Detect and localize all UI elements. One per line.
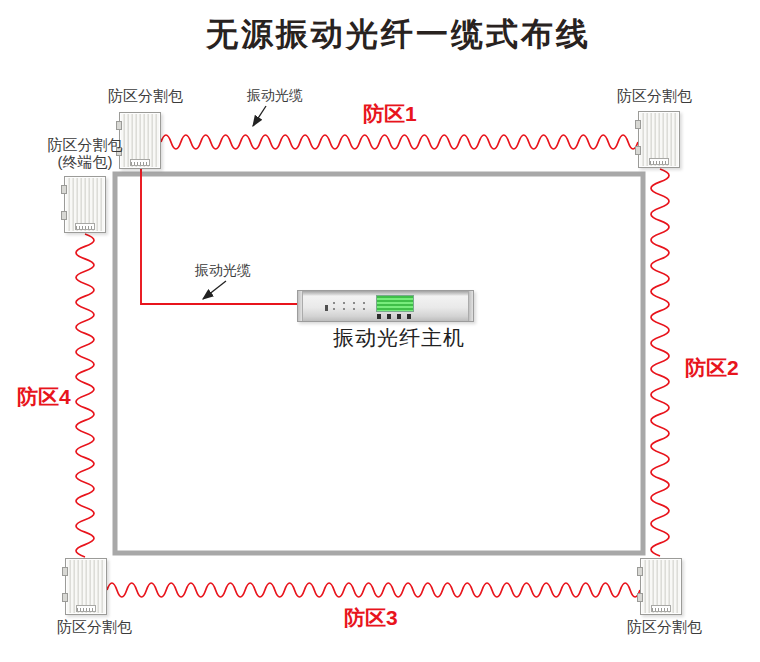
- perimeter-frame: [115, 174, 643, 553]
- terminal-box: [64, 176, 106, 233]
- terminal-label-line1: 防区分割包: [44, 136, 126, 153]
- zone4-vibration-cable: [76, 234, 94, 557]
- splitter-box-bottom-right: [640, 558, 682, 615]
- splitter-label-bottom-left: 防区分割包: [57, 618, 132, 637]
- rack-ear-right: [468, 291, 473, 321]
- splitter-label-bottom-right: 防区分割包: [627, 618, 702, 637]
- hinge-icon: [62, 567, 68, 576]
- hinge-icon: [637, 567, 643, 576]
- zone3-vibration-cable: [107, 583, 640, 597]
- splitter-label-top-left: 防区分割包: [108, 87, 183, 106]
- box-sticker: [76, 605, 96, 612]
- zone3-label: 防区3: [344, 604, 398, 632]
- hinge-icon: [116, 121, 122, 130]
- cable-label-top: 振动光缆: [247, 87, 303, 105]
- terminal-label-line2: (终端包): [44, 153, 126, 170]
- box-sticker: [75, 223, 95, 230]
- splitter-box-top-right: [638, 111, 680, 168]
- terminal-box-label: 防区分割包 (终端包): [44, 136, 126, 170]
- leader-arrow-top-icon: [253, 106, 266, 126]
- host-feed-cable: [141, 169, 297, 304]
- cable-label-mid: 振动光缆: [195, 262, 251, 280]
- box-sticker: [130, 159, 150, 166]
- hinge-icon: [635, 120, 641, 129]
- zone1-label: 防区1: [363, 100, 417, 128]
- hinge-icon: [62, 593, 68, 602]
- zone4-label: 防区4: [17, 383, 71, 411]
- zone2-label: 防区2: [685, 354, 739, 382]
- rack-ear-left: [298, 291, 303, 321]
- host-label: 振动光纤主机: [333, 324, 465, 352]
- box-sticker: [649, 158, 669, 165]
- hinge-icon: [637, 593, 643, 602]
- power-switch: [325, 305, 328, 311]
- box-sticker: [651, 605, 671, 612]
- zone2-vibration-cable: [651, 169, 669, 556]
- hinge-icon: [61, 185, 67, 194]
- splitter-label-top-right: 防区分割包: [617, 87, 692, 106]
- lcd-screen: [376, 295, 414, 312]
- leader-arrow-mid-icon: [203, 281, 226, 299]
- hinge-icon: [635, 146, 641, 155]
- hinge-icon: [61, 211, 67, 220]
- zone1-vibration-cable: [161, 135, 638, 149]
- splitter-box-bottom-left: [65, 558, 107, 615]
- panel-buttons: [377, 314, 381, 319]
- fiber-host-device: [297, 290, 474, 322]
- diagram-stage: 无源振动光纤一缆式布线: [0, 0, 760, 662]
- led-indicators: [333, 302, 335, 304]
